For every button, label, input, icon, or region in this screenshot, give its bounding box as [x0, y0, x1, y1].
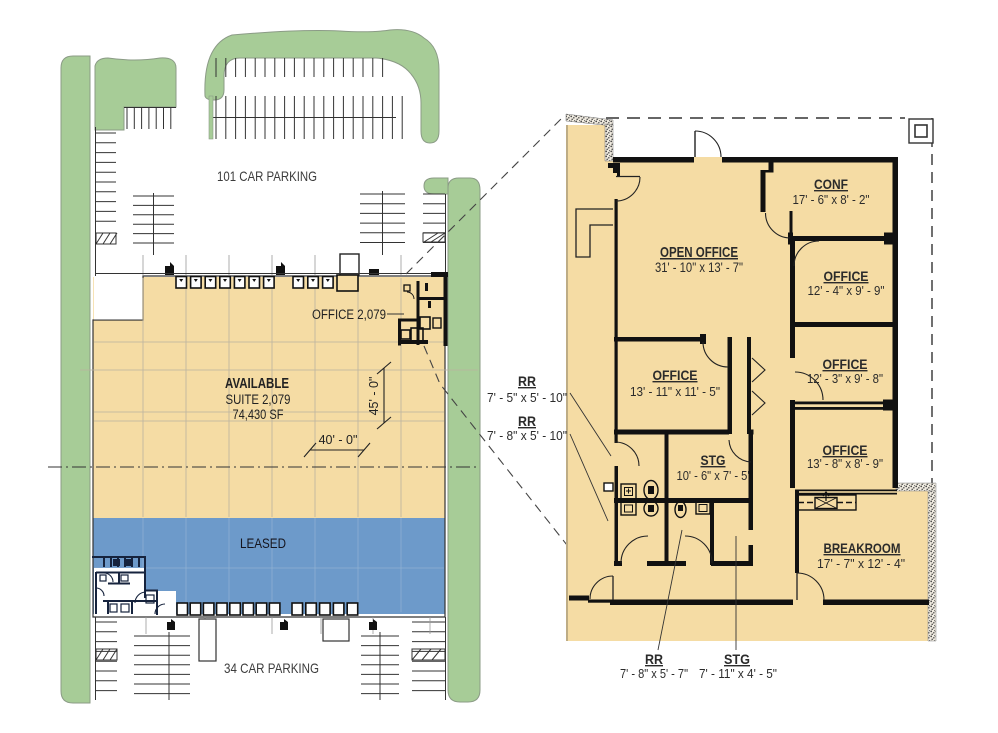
- svg-text:45' - 0": 45' - 0": [367, 377, 381, 416]
- svg-text:CONF: CONF: [814, 176, 848, 192]
- svg-text:LEASED: LEASED: [240, 535, 286, 551]
- svg-text:12' - 4" x 9' - 9": 12' - 4" x 9' - 9": [808, 284, 885, 298]
- svg-text:STG: STG: [701, 452, 726, 468]
- svg-text:OFFICE: OFFICE: [823, 356, 868, 372]
- svg-text:40' - 0": 40' - 0": [319, 433, 358, 447]
- svg-text:OFFICE: OFFICE: [653, 367, 698, 383]
- svg-text:BREAKROOM: BREAKROOM: [824, 540, 901, 556]
- svg-text:7' - 8" x 5' - 10": 7' - 8" x 5' - 10": [487, 429, 567, 443]
- svg-text:17' - 7" x 12' - 4": 17' - 7" x 12' - 4": [817, 557, 905, 571]
- svg-text:OFFICE: OFFICE: [824, 268, 869, 284]
- svg-text:13' - 8" x 8' - 9": 13' - 8" x 8' - 9": [807, 457, 883, 471]
- svg-text:34 CAR PARKING: 34 CAR PARKING: [224, 660, 319, 676]
- svg-text:13' - 11" x 11' - 5": 13' - 11" x 11' - 5": [630, 385, 720, 399]
- svg-text:10' - 6" x 7' - 5': 10' - 6" x 7' - 5': [677, 469, 750, 483]
- svg-text:74,430 SF: 74,430 SF: [233, 406, 284, 422]
- svg-text:7' - 8" x 5' - 7": 7' - 8" x 5' - 7": [620, 667, 688, 681]
- svg-text:17' - 6" x 8' - 2": 17' - 6" x 8' - 2": [793, 193, 870, 207]
- svg-text:31' - 10" x 13' - 7": 31' - 10" x 13' - 7": [655, 260, 743, 275]
- svg-text:7' - 11" x 4' - 5": 7' - 11" x 4' - 5": [699, 667, 777, 681]
- svg-text:RR: RR: [518, 373, 536, 389]
- svg-text:OFFICE 2,079: OFFICE 2,079: [312, 307, 386, 322]
- svg-text:RR: RR: [645, 651, 663, 667]
- svg-text:101 CAR PARKING: 101 CAR PARKING: [217, 168, 317, 184]
- svg-text:12' - 3" x 9' - 8": 12' - 3" x 9' - 8": [807, 372, 883, 386]
- svg-text:SUITE 2,079: SUITE 2,079: [226, 391, 291, 407]
- svg-text:AVAILABLE: AVAILABLE: [225, 375, 289, 392]
- svg-text:RR: RR: [518, 413, 536, 429]
- svg-text:OPEN OFFICE: OPEN OFFICE: [660, 244, 738, 261]
- svg-text:STG: STG: [724, 651, 750, 667]
- svg-text:OFFICE: OFFICE: [823, 442, 868, 458]
- svg-text:7' - 5" x 5' - 10": 7' - 5" x 5' - 10": [487, 391, 567, 405]
